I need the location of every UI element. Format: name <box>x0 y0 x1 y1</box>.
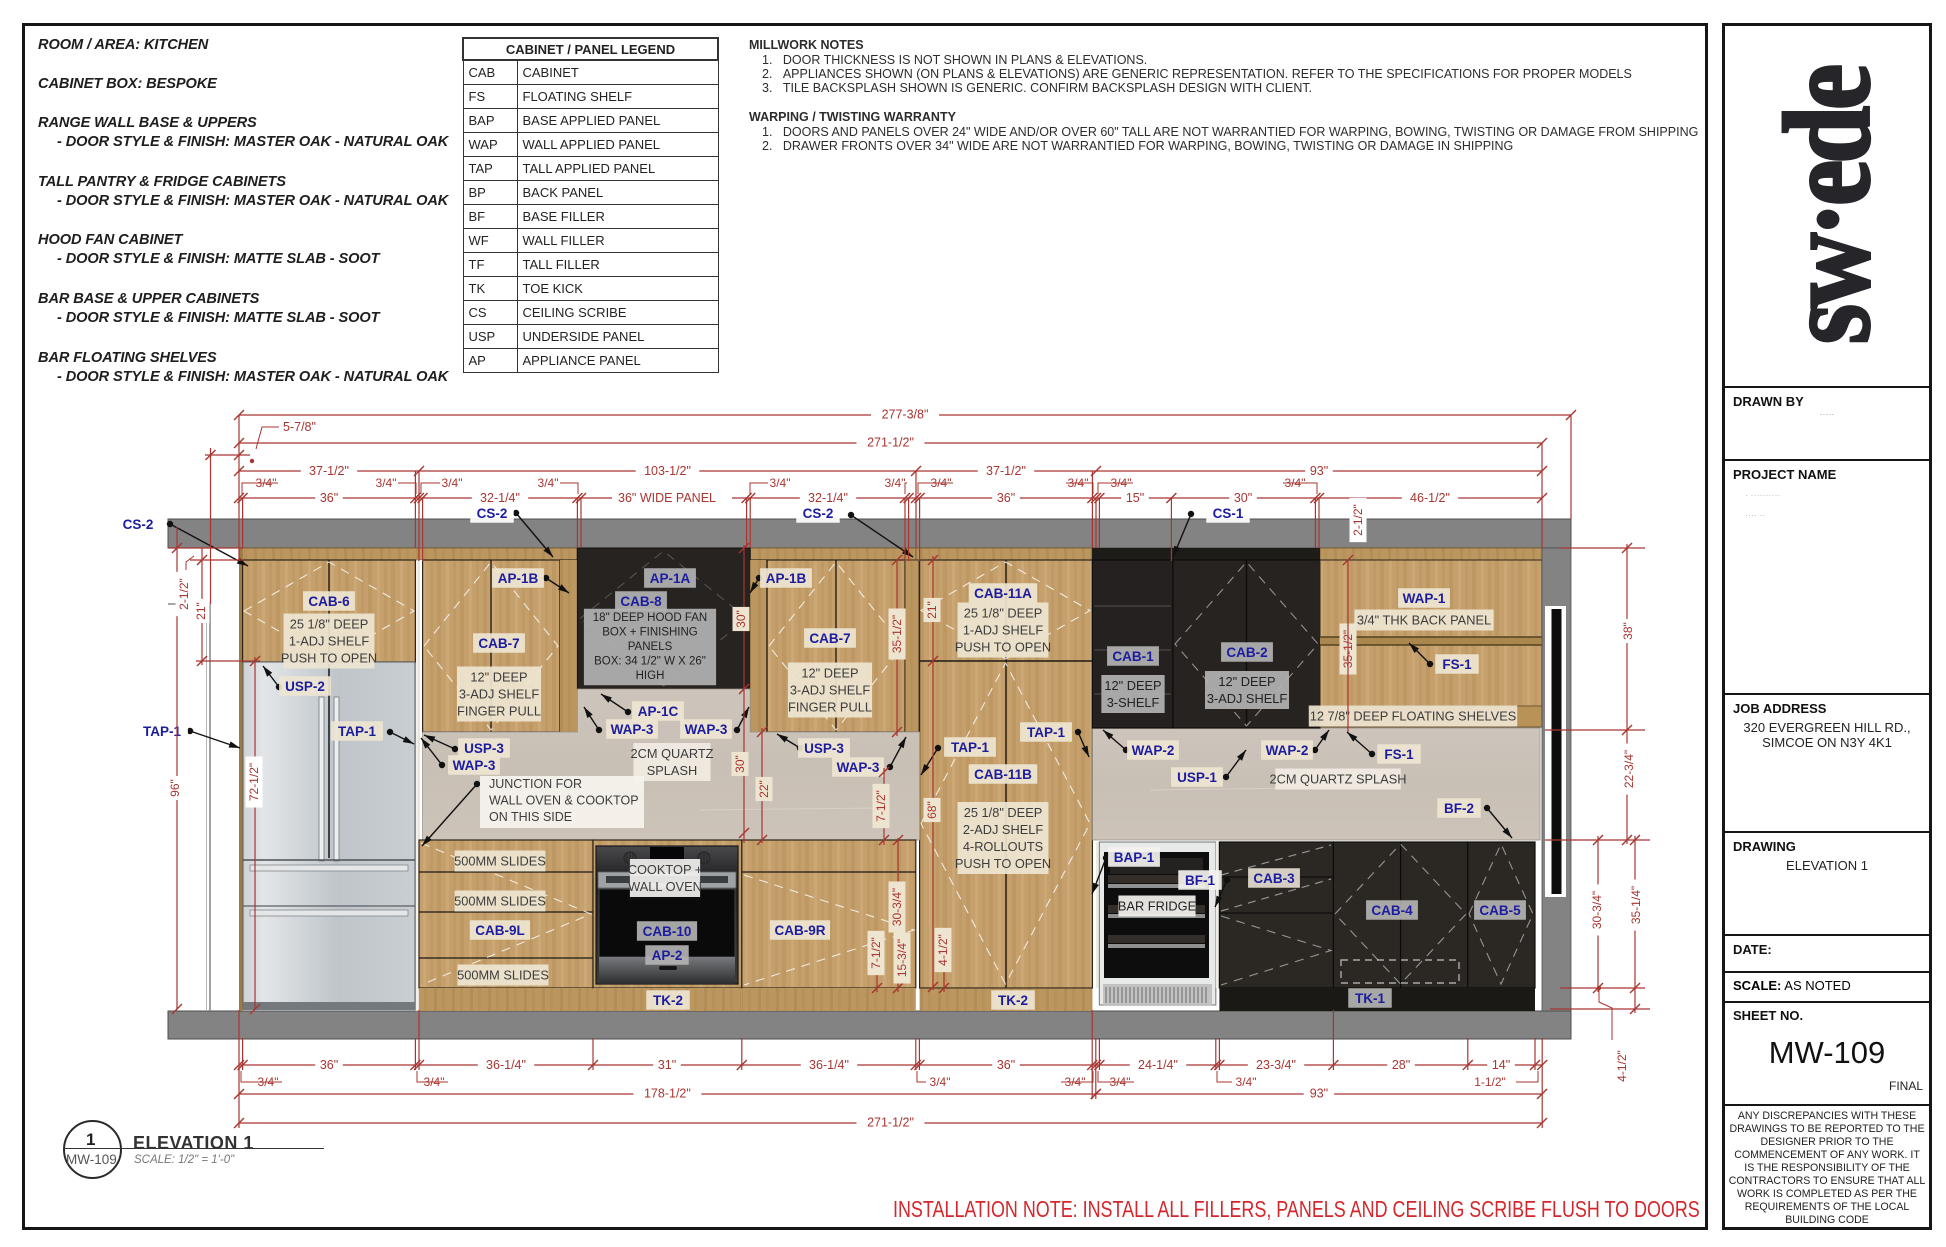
svg-text:36": 36" <box>997 1058 1015 1072</box>
svg-text:TAP-1: TAP-1 <box>1027 725 1065 740</box>
svg-text:271-1/2": 271-1/2" <box>867 1116 914 1130</box>
svg-text:5-7/8": 5-7/8" <box>283 420 316 434</box>
svg-text:PUSH TO OPEN: PUSH TO OPEN <box>955 640 1051 655</box>
svg-text:WAP-3: WAP-3 <box>837 760 880 775</box>
svg-text:WAP-3: WAP-3 <box>685 722 728 737</box>
svg-text:500MM SLIDES: 500MM SLIDES <box>454 854 546 869</box>
svg-text:28": 28" <box>1392 1058 1410 1072</box>
svg-text:30": 30" <box>734 610 748 628</box>
svg-text:271-1/2": 271-1/2" <box>867 436 914 450</box>
svg-text:24-1/4": 24-1/4" <box>1138 1058 1178 1072</box>
svg-text:32-1/4": 32-1/4" <box>808 491 848 505</box>
svg-text:36": 36" <box>997 491 1015 505</box>
svg-text:BAR FRIDGE: BAR FRIDGE <box>1118 899 1196 914</box>
svg-text:CAB-7: CAB-7 <box>478 636 519 651</box>
svg-text:3/4": 3/4" <box>538 476 559 490</box>
svg-text:AP-2: AP-2 <box>652 948 683 963</box>
svg-text:3/4": 3/4" <box>770 476 791 490</box>
svg-text:CAB-3: CAB-3 <box>1253 871 1295 886</box>
svg-text:96": 96" <box>168 779 182 797</box>
svg-text:USP-3: USP-3 <box>804 741 844 756</box>
svg-text:CAB-5: CAB-5 <box>1479 903 1521 918</box>
svg-text:23-3/4": 23-3/4" <box>1256 1058 1296 1072</box>
svg-text:46-1/2": 46-1/2" <box>1410 491 1450 505</box>
svg-text:3-ADJ SHELF: 3-ADJ SHELF <box>1207 691 1288 706</box>
svg-text:WAP-1: WAP-1 <box>1403 591 1446 606</box>
svg-text:12" DEEP: 12" DEEP <box>1104 678 1161 693</box>
svg-text:CS-2: CS-2 <box>477 506 508 521</box>
svg-text:CAB-10: CAB-10 <box>643 924 692 939</box>
svg-text:3/4": 3/4" <box>885 476 906 490</box>
svg-text:103-1/2": 103-1/2" <box>644 464 691 478</box>
svg-text:TAP-1: TAP-1 <box>951 740 989 755</box>
svg-text:32-1/4": 32-1/4" <box>480 491 520 505</box>
svg-text:BF-2: BF-2 <box>1444 801 1474 816</box>
svg-text:AP-1A: AP-1A <box>650 571 691 586</box>
svg-text:12" DEEP: 12" DEEP <box>801 666 858 681</box>
svg-text:22": 22" <box>757 780 771 798</box>
svg-text:CAB-2: CAB-2 <box>1226 645 1267 660</box>
svg-text:12" DEEP: 12" DEEP <box>1218 674 1275 689</box>
svg-text:TK-1: TK-1 <box>1355 991 1385 1006</box>
svg-text:CAB-4: CAB-4 <box>1371 903 1413 918</box>
svg-text:36": 36" <box>320 491 338 505</box>
svg-text:68": 68" <box>925 801 939 819</box>
svg-text:CS-1: CS-1 <box>1213 506 1244 521</box>
svg-text:SPLASH: SPLASH <box>647 763 698 778</box>
svg-text:WALL OVEN: WALL OVEN <box>628 879 702 894</box>
svg-text:FS-1: FS-1 <box>1442 657 1472 672</box>
svg-text:72-1/2": 72-1/2" <box>247 763 261 801</box>
svg-text:CS-2: CS-2 <box>123 517 154 532</box>
svg-text:BOX + FINISHING: BOX + FINISHING <box>602 627 698 639</box>
svg-text:TAP-1: TAP-1 <box>338 724 376 739</box>
svg-text:178-1/2": 178-1/2" <box>644 1087 691 1101</box>
svg-text:25 1/8" DEEP: 25 1/8" DEEP <box>290 617 369 632</box>
svg-text:USP-2: USP-2 <box>285 679 325 694</box>
svg-text:15-3/4": 15-3/4" <box>895 939 909 977</box>
svg-text:30-3/4": 30-3/4" <box>1590 891 1604 929</box>
svg-text:CAB-1: CAB-1 <box>1112 649 1154 664</box>
svg-text:3/4": 3/4" <box>1236 1075 1257 1089</box>
svg-text:4-ROLLOUTS: 4-ROLLOUTS <box>963 839 1043 854</box>
svg-text:500MM SLIDES: 500MM SLIDES <box>454 894 546 909</box>
svg-text:CAB-6: CAB-6 <box>308 594 350 609</box>
svg-text:36": 36" <box>320 1058 338 1072</box>
svg-text:36-1/4": 36-1/4" <box>809 1058 849 1072</box>
svg-text:WAP-2: WAP-2 <box>1132 743 1175 758</box>
svg-text:15": 15" <box>1126 491 1144 505</box>
svg-text:3/4": 3/4" <box>930 1075 951 1089</box>
svg-text:PUSH TO OPEN: PUSH TO OPEN <box>281 651 377 666</box>
svg-text:WAP-3: WAP-3 <box>611 722 654 737</box>
svg-text:AP-1B: AP-1B <box>498 571 539 586</box>
svg-text:30": 30" <box>1234 491 1252 505</box>
svg-text:CAB-11A: CAB-11A <box>974 586 1032 601</box>
svg-text:37-1/2": 37-1/2" <box>309 464 349 478</box>
svg-text:31": 31" <box>658 1058 676 1072</box>
svg-text:1-ADJ SHELF: 1-ADJ SHELF <box>289 634 370 649</box>
svg-text:WAP-3: WAP-3 <box>453 758 496 773</box>
svg-text:1-1/2": 1-1/2" <box>1474 1075 1506 1089</box>
svg-text:21": 21" <box>925 601 939 619</box>
svg-text:2-1/2": 2-1/2" <box>1351 504 1365 536</box>
svg-text:TK-2: TK-2 <box>653 993 683 1008</box>
svg-text:3/4" THK BACK PANEL: 3/4" THK BACK PANEL <box>1357 613 1491 628</box>
svg-text:CAB-9L: CAB-9L <box>475 923 525 938</box>
svg-text:CAB-7: CAB-7 <box>809 631 850 646</box>
svg-text:4-1/2": 4-1/2" <box>1615 1050 1629 1082</box>
svg-text:35-1/4": 35-1/4" <box>1629 886 1643 924</box>
svg-text:14": 14" <box>1492 1058 1510 1072</box>
svg-text:21": 21" <box>194 602 208 620</box>
svg-text:CAB-8: CAB-8 <box>620 594 662 609</box>
svg-text:FINGER PULL: FINGER PULL <box>457 704 541 719</box>
svg-text:AP-1B: AP-1B <box>766 571 807 586</box>
svg-text:7-1/2": 7-1/2" <box>869 937 883 969</box>
svg-text:30": 30" <box>733 755 747 773</box>
svg-text:4-1/2": 4-1/2" <box>936 934 950 966</box>
svg-text:BOX: 34 1/2" W X 26": BOX: 34 1/2" W X 26" <box>594 656 706 668</box>
svg-text:HIGH: HIGH <box>636 670 665 682</box>
svg-text:12" DEEP: 12" DEEP <box>470 670 527 685</box>
svg-text:3-SHELF: 3-SHELF <box>1107 695 1160 710</box>
svg-text:25 1/8" DEEP: 25 1/8" DEEP <box>964 606 1043 621</box>
svg-text:JUNCTION FOR: JUNCTION FOR <box>489 777 582 791</box>
svg-text:36-1/4": 36-1/4" <box>486 1058 526 1072</box>
svg-text:FS-1: FS-1 <box>1384 747 1414 762</box>
svg-text:93": 93" <box>1310 464 1328 478</box>
svg-text:25 1/8" DEEP: 25 1/8" DEEP <box>964 805 1043 820</box>
svg-text:36" WIDE PANEL: 36" WIDE PANEL <box>618 491 716 505</box>
svg-text:BF-1: BF-1 <box>1185 873 1215 888</box>
svg-text:3/4": 3/4" <box>376 476 397 490</box>
svg-text:CAB-9R: CAB-9R <box>774 923 825 938</box>
svg-text:2-1/2": 2-1/2" <box>177 578 191 610</box>
svg-text:2CM QUARTZ SPLASH: 2CM QUARTZ SPLASH <box>1269 772 1406 787</box>
svg-text:WAP-2: WAP-2 <box>1266 743 1309 758</box>
svg-text:TAP-1: TAP-1 <box>143 724 181 739</box>
svg-text:18" DEEP HOOD FAN: 18" DEEP HOOD FAN <box>593 612 707 624</box>
svg-text:2-ADJ SHELF: 2-ADJ SHELF <box>963 822 1044 837</box>
svg-text:2CM QUARTZ: 2CM QUARTZ <box>631 746 714 761</box>
svg-text:AP-1C: AP-1C <box>638 704 679 719</box>
svg-text:WALL OVEN & COOKTOP: WALL OVEN & COOKTOP <box>489 794 639 808</box>
svg-text:500MM SLIDES: 500MM SLIDES <box>457 968 549 983</box>
svg-text:38": 38" <box>1621 622 1635 640</box>
svg-text:TK-2: TK-2 <box>998 993 1028 1008</box>
svg-text:ON THIS SIDE: ON THIS SIDE <box>489 810 572 824</box>
svg-text:3-ADJ SHELF: 3-ADJ SHELF <box>790 683 871 698</box>
svg-text:1-ADJ SHELF: 1-ADJ SHELF <box>963 623 1044 638</box>
svg-text:3-ADJ SHELF: 3-ADJ SHELF <box>459 687 540 702</box>
svg-text:7-1/2": 7-1/2" <box>874 790 888 822</box>
svg-text:BAP-1: BAP-1 <box>1114 850 1155 865</box>
svg-text:COOKTOP +: COOKTOP + <box>628 862 703 877</box>
svg-text:CS-2: CS-2 <box>803 506 834 521</box>
svg-text:USP-1: USP-1 <box>1177 770 1217 785</box>
svg-text:PUSH TO OPEN: PUSH TO OPEN <box>955 856 1051 871</box>
svg-text:USP-3: USP-3 <box>464 741 504 756</box>
svg-text:3/4": 3/4" <box>442 476 463 490</box>
svg-text:277-3/8": 277-3/8" <box>882 408 929 422</box>
svg-text:CAB-11B: CAB-11B <box>974 767 1032 782</box>
svg-text:35-1/2": 35-1/2" <box>890 615 904 653</box>
svg-text:93": 93" <box>1310 1087 1328 1101</box>
svg-text:12 7/8" DEEP FLOATING SHELVES: 12 7/8" DEEP FLOATING SHELVES <box>1310 709 1517 724</box>
svg-text:30-3/4": 30-3/4" <box>890 888 904 926</box>
svg-text:22-3/4": 22-3/4" <box>1622 750 1636 788</box>
svg-text:PANELS: PANELS <box>628 641 673 653</box>
svg-text:FINGER PULL: FINGER PULL <box>788 700 872 715</box>
svg-text:37-1/2": 37-1/2" <box>986 464 1026 478</box>
